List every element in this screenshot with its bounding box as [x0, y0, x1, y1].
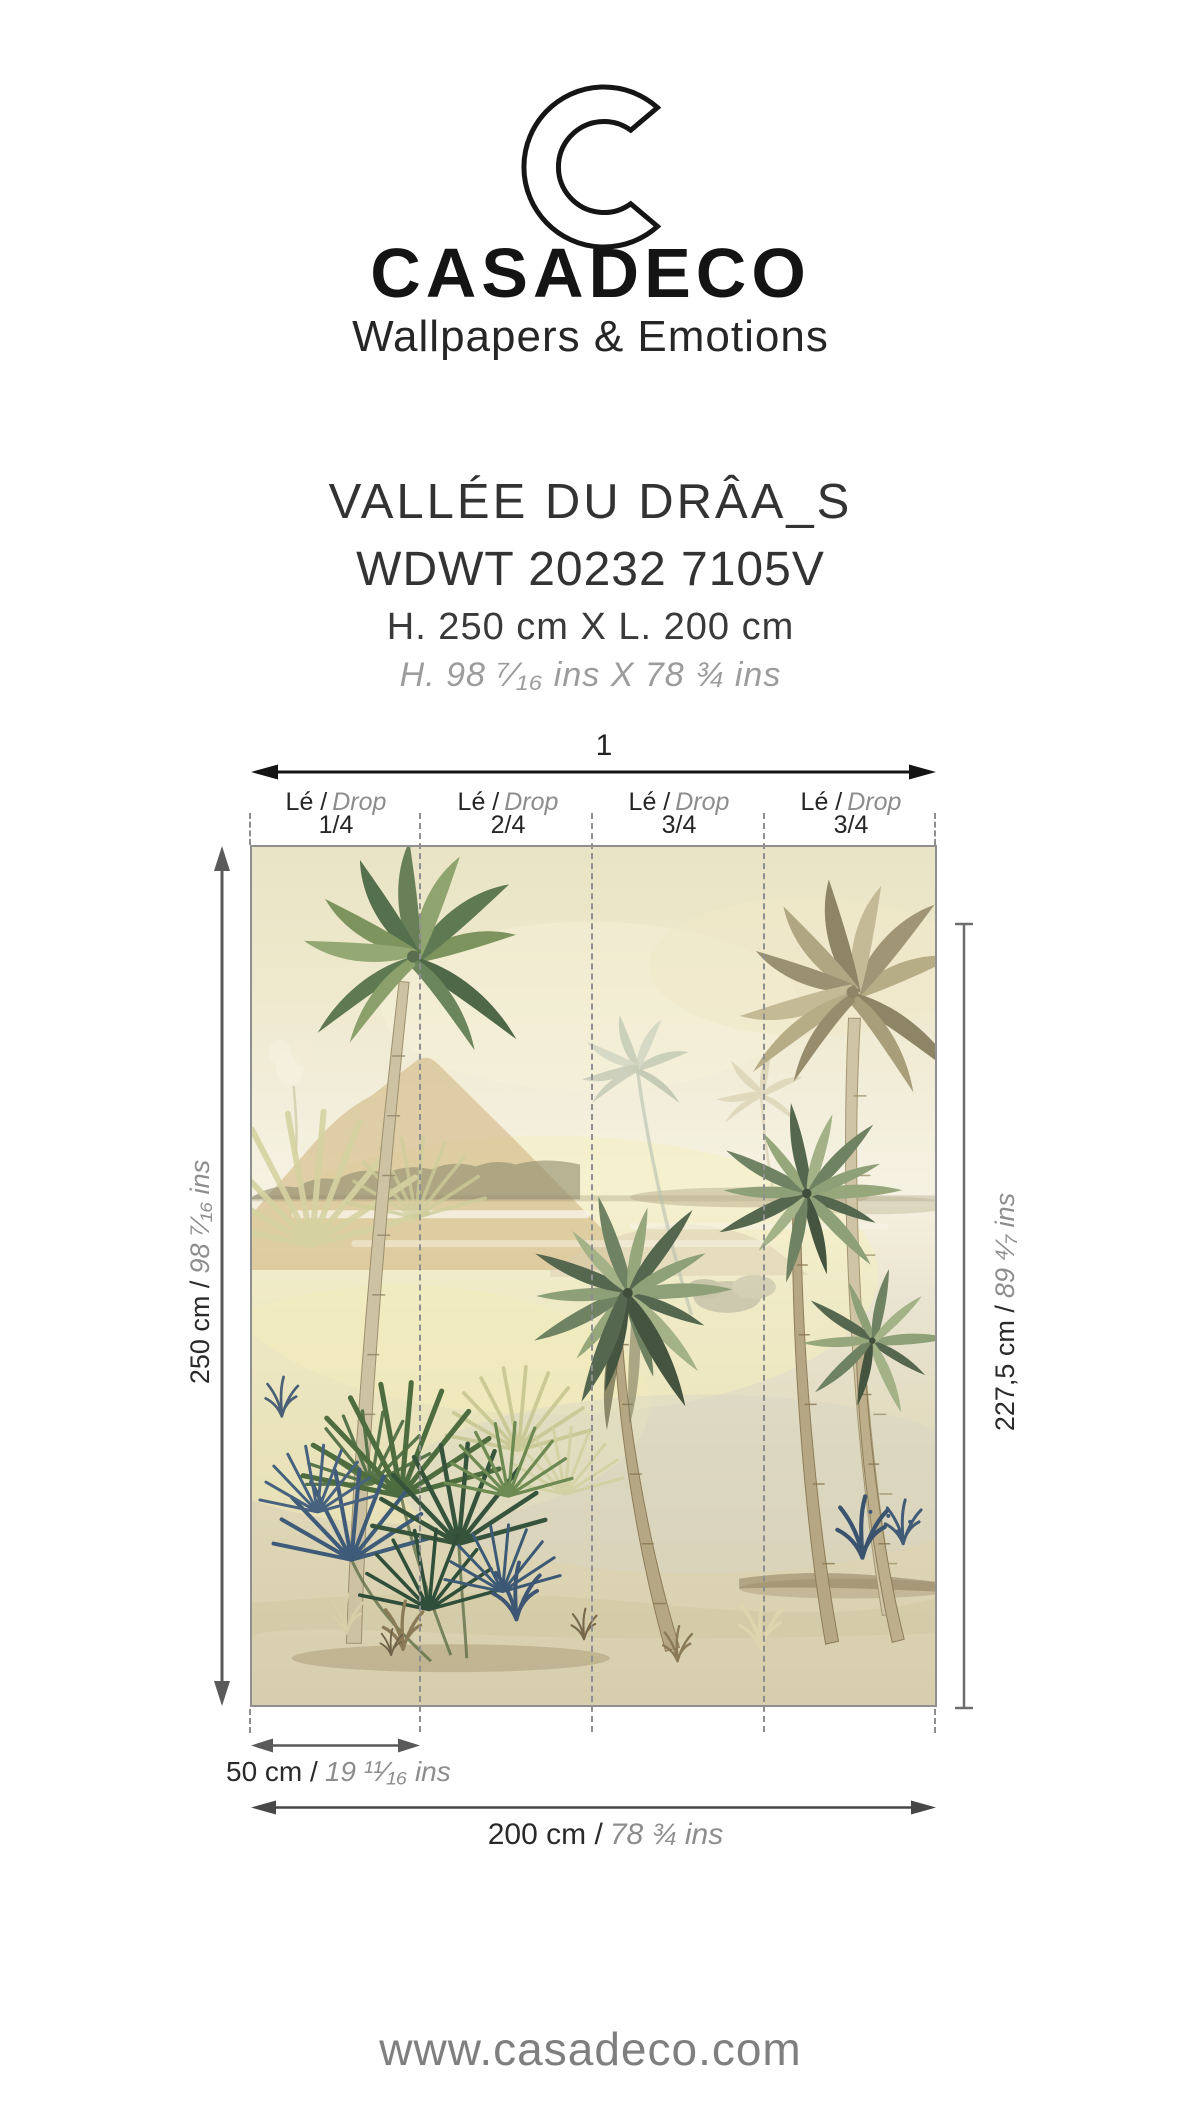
- drop-label-4-fraction: 3/4: [761, 814, 941, 837]
- dim-drop-width-ins: 19 ¹¹⁄₁₆ ins: [325, 1756, 451, 1787]
- dim-drop-width-label: 50 cm /19 ¹¹⁄₁₆ ins: [226, 1756, 446, 1788]
- brand-tagline: Wallpapers & Emotions: [0, 312, 1181, 362]
- drop-divider-line-3: [763, 813, 765, 1732]
- drop-width-arrow-icon: [250, 1737, 421, 1754]
- dim-height-total-cm: 250 cm /: [185, 1281, 215, 1385]
- dim-height-total-label: 250 cm /98 ⁷⁄₁₆ ins: [185, 1062, 215, 1482]
- roll-count-label: 1: [564, 729, 644, 763]
- drop-label-1-fraction: 1/4: [246, 814, 426, 837]
- mural-left-edge-tick-top: [249, 813, 251, 845]
- dim-total-width-ins: 78 ¾ ins: [610, 1818, 723, 1851]
- product-name: VALLÉE DU DRÂA_S: [0, 474, 1181, 530]
- drop-label-1: Lé /Drop 1/4: [246, 791, 426, 837]
- wallpaper-mural-image: [250, 845, 937, 1707]
- dim-height-right-ins: 89 ⁴⁄₇ ins: [990, 1193, 1020, 1298]
- product-reference: WDWT 20232 7105V: [0, 542, 1181, 597]
- spec-sheet-page: { "palette":{ "page_bg":"#ffffff","ink":…: [0, 0, 1181, 2126]
- drop-label-3-fraction: 3/4: [589, 814, 769, 837]
- top-width-arrow-icon: [250, 762, 937, 782]
- mural-right-edge-tick-top: [934, 813, 936, 845]
- total-width-arrow-bottom-icon: [250, 1799, 937, 1816]
- drop-label-4: Lé /Drop 3/4: [761, 791, 941, 837]
- drop-divider-line-2: [591, 813, 593, 1732]
- drop-divider-line-1: [419, 813, 421, 1732]
- product-size-cm: H. 250 cm X L. 200 cm: [0, 606, 1181, 649]
- dim-height-right-cm: 227,5 cm /: [990, 1305, 1020, 1431]
- dim-height-right-label: 227,5 cm /89 ⁴⁄₇ ins: [990, 1092, 1020, 1532]
- height-line-right-icon: [951, 921, 977, 1711]
- casadeco-c-logo-icon: [518, 81, 690, 253]
- footer-url: www.casadeco.com: [0, 2022, 1181, 2076]
- drop-label-3: Lé /Drop 3/4: [589, 791, 769, 837]
- brand-title: CASADECO: [0, 233, 1181, 313]
- dim-total-width-label: 200 cm /78 ¾ ins: [262, 1818, 949, 1852]
- product-size-ins: H. 98 ⁷⁄₁₆ ins X 78 ¾ ins: [0, 656, 1181, 695]
- drop-label-2-fraction: 2/4: [418, 814, 598, 837]
- mural-left-edge-tick-bottom: [249, 1709, 251, 1733]
- mural-right-edge-tick-bottom: [934, 1709, 936, 1733]
- dim-height-total-ins: 98 ⁷⁄₁₆ ins: [185, 1160, 215, 1274]
- dim-drop-width-cm: 50 cm /: [226, 1756, 318, 1787]
- mural-artwork: [252, 847, 935, 1705]
- dim-total-width-cm: 200 cm /: [488, 1818, 603, 1851]
- drop-label-2: Lé /Drop 2/4: [418, 791, 598, 837]
